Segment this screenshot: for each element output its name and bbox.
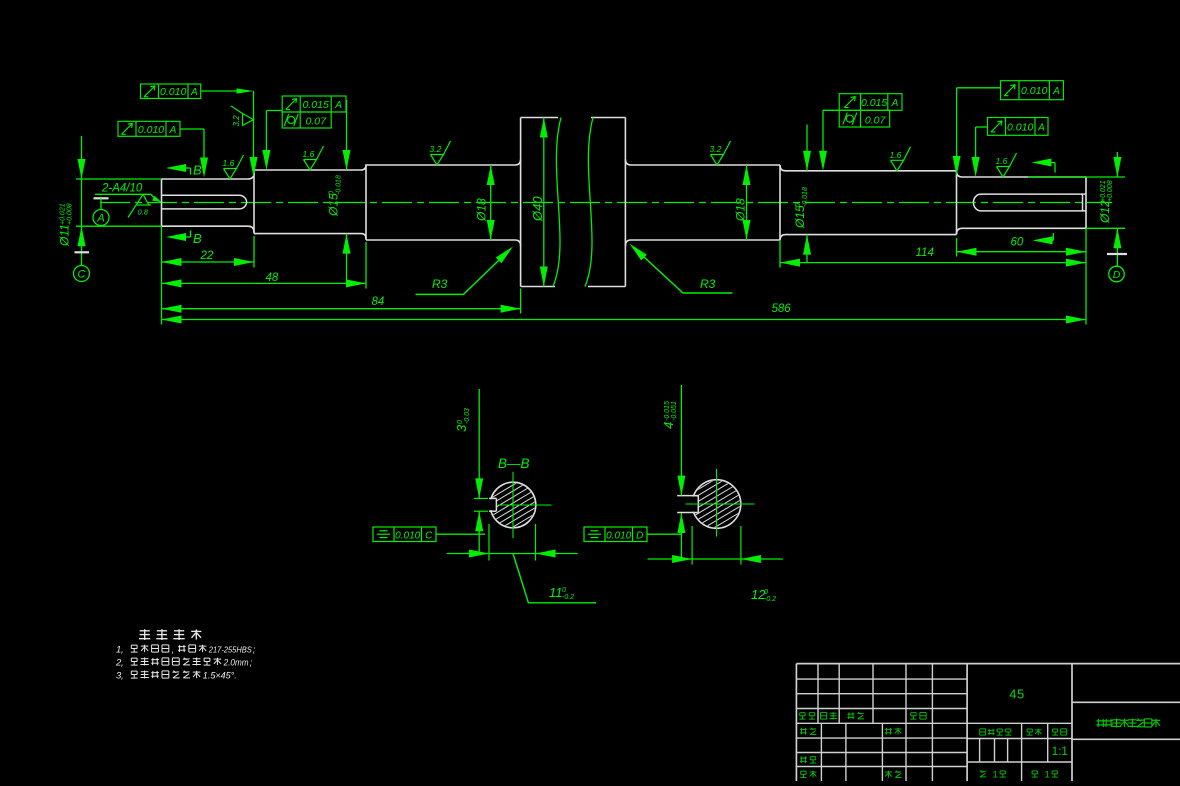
svg-text:A: A [1052, 86, 1060, 97]
svg-text:0: 0 [328, 191, 335, 195]
svg-text:0.015: 0.015 [303, 99, 329, 111]
svg-text:0.015: 0.015 [861, 97, 887, 109]
svg-text:84: 84 [372, 296, 385, 308]
svg-text:217-255HBS: 217-255HBS [208, 645, 252, 655]
svg-text:0.07: 0.07 [305, 116, 327, 128]
svg-text:R3: R3 [700, 277, 716, 291]
svg-text:Ø18: Ø18 [475, 198, 489, 222]
svg-text:A: A [334, 100, 342, 111]
svg-text:,: , [172, 645, 175, 656]
svg-text:Ø11: Ø11 [58, 224, 72, 247]
svg-text:0.010: 0.010 [1021, 85, 1047, 97]
svg-text:586: 586 [772, 303, 792, 315]
svg-text:0: 0 [457, 420, 464, 424]
svg-text:0: 0 [562, 587, 566, 594]
svg-text:11: 11 [549, 585, 563, 600]
svg-text:1.5×45°.: 1.5×45°. [203, 671, 237, 681]
svg-text:Ø40: Ø40 [530, 196, 545, 222]
svg-text:3: 3 [454, 424, 469, 432]
svg-text:Ø15: Ø15 [793, 205, 807, 229]
svg-text:1:1: 1:1 [1052, 746, 1068, 758]
svg-text:45: 45 [1009, 687, 1024, 702]
svg-text:;: ; [250, 658, 253, 669]
svg-text:+0.021: +0.021 [59, 203, 66, 225]
svg-text:0.8: 0.8 [138, 208, 149, 217]
svg-text:48: 48 [266, 272, 279, 284]
svg-text:;: ; [253, 645, 256, 656]
svg-text:A: A [1037, 122, 1045, 133]
svg-text:Ø18: Ø18 [734, 198, 748, 222]
svg-text:-0.051: -0.051 [671, 401, 678, 421]
svg-text:-0.2: -0.2 [764, 596, 776, 603]
svg-text:1.6: 1.6 [890, 150, 902, 160]
svg-text:A: A [169, 125, 177, 136]
svg-text:-0.018: -0.018 [336, 175, 343, 195]
svg-text:-0.015: -0.015 [664, 401, 671, 421]
svg-text:B: B [193, 163, 202, 178]
svg-text:1: 1 [993, 770, 998, 781]
svg-text:0.010: 0.010 [1007, 121, 1033, 133]
svg-text:0.07: 0.07 [865, 114, 887, 126]
svg-text:B: B [193, 231, 202, 246]
svg-text:4: 4 [661, 422, 676, 429]
svg-text:-0.2: -0.2 [562, 594, 574, 601]
svg-text:R3: R3 [432, 277, 448, 291]
svg-text:A: A [96, 213, 104, 225]
svg-text:3.2: 3.2 [232, 115, 241, 127]
svg-text:,: , [121, 645, 124, 656]
svg-text:0: 0 [795, 203, 802, 207]
svg-text:2-A4/10: 2-A4/10 [101, 183, 143, 195]
svg-text:,: , [121, 671, 124, 682]
svg-text:1.6: 1.6 [223, 158, 235, 168]
svg-text:1.6: 1.6 [303, 149, 315, 159]
svg-text:60: 60 [1011, 237, 1024, 249]
svg-text:,: , [121, 658, 124, 669]
svg-text:D: D [1113, 269, 1121, 281]
svg-text:114: 114 [916, 247, 934, 259]
svg-text:22: 22 [200, 250, 214, 262]
svg-text:0.010: 0.010 [395, 531, 420, 542]
svg-text:+0.008: +0.008 [1107, 180, 1114, 202]
svg-text:3.2: 3.2 [710, 144, 722, 154]
svg-text:B—B: B—B [498, 456, 530, 471]
svg-text:0: 0 [764, 589, 768, 596]
svg-text:C: C [425, 531, 433, 542]
svg-text:A: A [891, 98, 899, 109]
svg-text:D: D [636, 531, 643, 542]
svg-text:A: A [190, 87, 198, 98]
svg-text:Ø15: Ø15 [327, 193, 341, 217]
svg-text:3.2: 3.2 [430, 144, 442, 154]
svg-text:1.6: 1.6 [996, 156, 1008, 166]
svg-text:+0.008: +0.008 [67, 203, 74, 225]
svg-text:+0.021: +0.021 [1100, 180, 1107, 202]
svg-text:0.010: 0.010 [606, 531, 631, 542]
svg-text:-0.018: -0.018 [802, 187, 809, 207]
svg-text:0.010: 0.010 [138, 124, 164, 136]
svg-text:1: 1 [1045, 770, 1050, 781]
svg-text:-0.03: -0.03 [464, 408, 471, 424]
svg-text:Ø12: Ø12 [1098, 200, 1112, 224]
svg-text:0.010: 0.010 [160, 86, 186, 98]
svg-text:2.0mm: 2.0mm [223, 658, 249, 668]
svg-text:C: C [78, 269, 86, 281]
